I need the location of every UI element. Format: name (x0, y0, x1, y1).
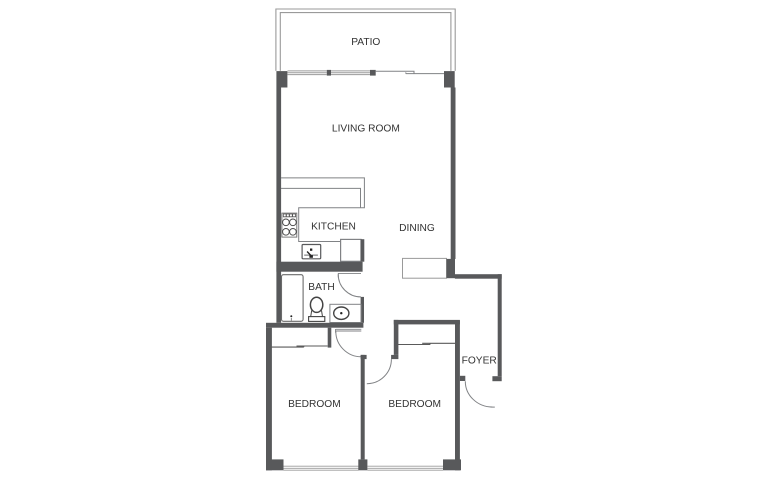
svg-text:KITCHEN: KITCHEN (311, 221, 356, 232)
svg-text:FOYER: FOYER (462, 355, 497, 366)
svg-text:BEDROOM: BEDROOM (288, 399, 341, 410)
svg-text:LIVING ROOM: LIVING ROOM (332, 123, 400, 134)
svg-text:PATIO: PATIO (351, 37, 380, 48)
svg-text:BATH: BATH (308, 282, 334, 293)
svg-text:BEDROOM: BEDROOM (388, 399, 441, 410)
svg-text:DINING: DINING (399, 223, 435, 234)
